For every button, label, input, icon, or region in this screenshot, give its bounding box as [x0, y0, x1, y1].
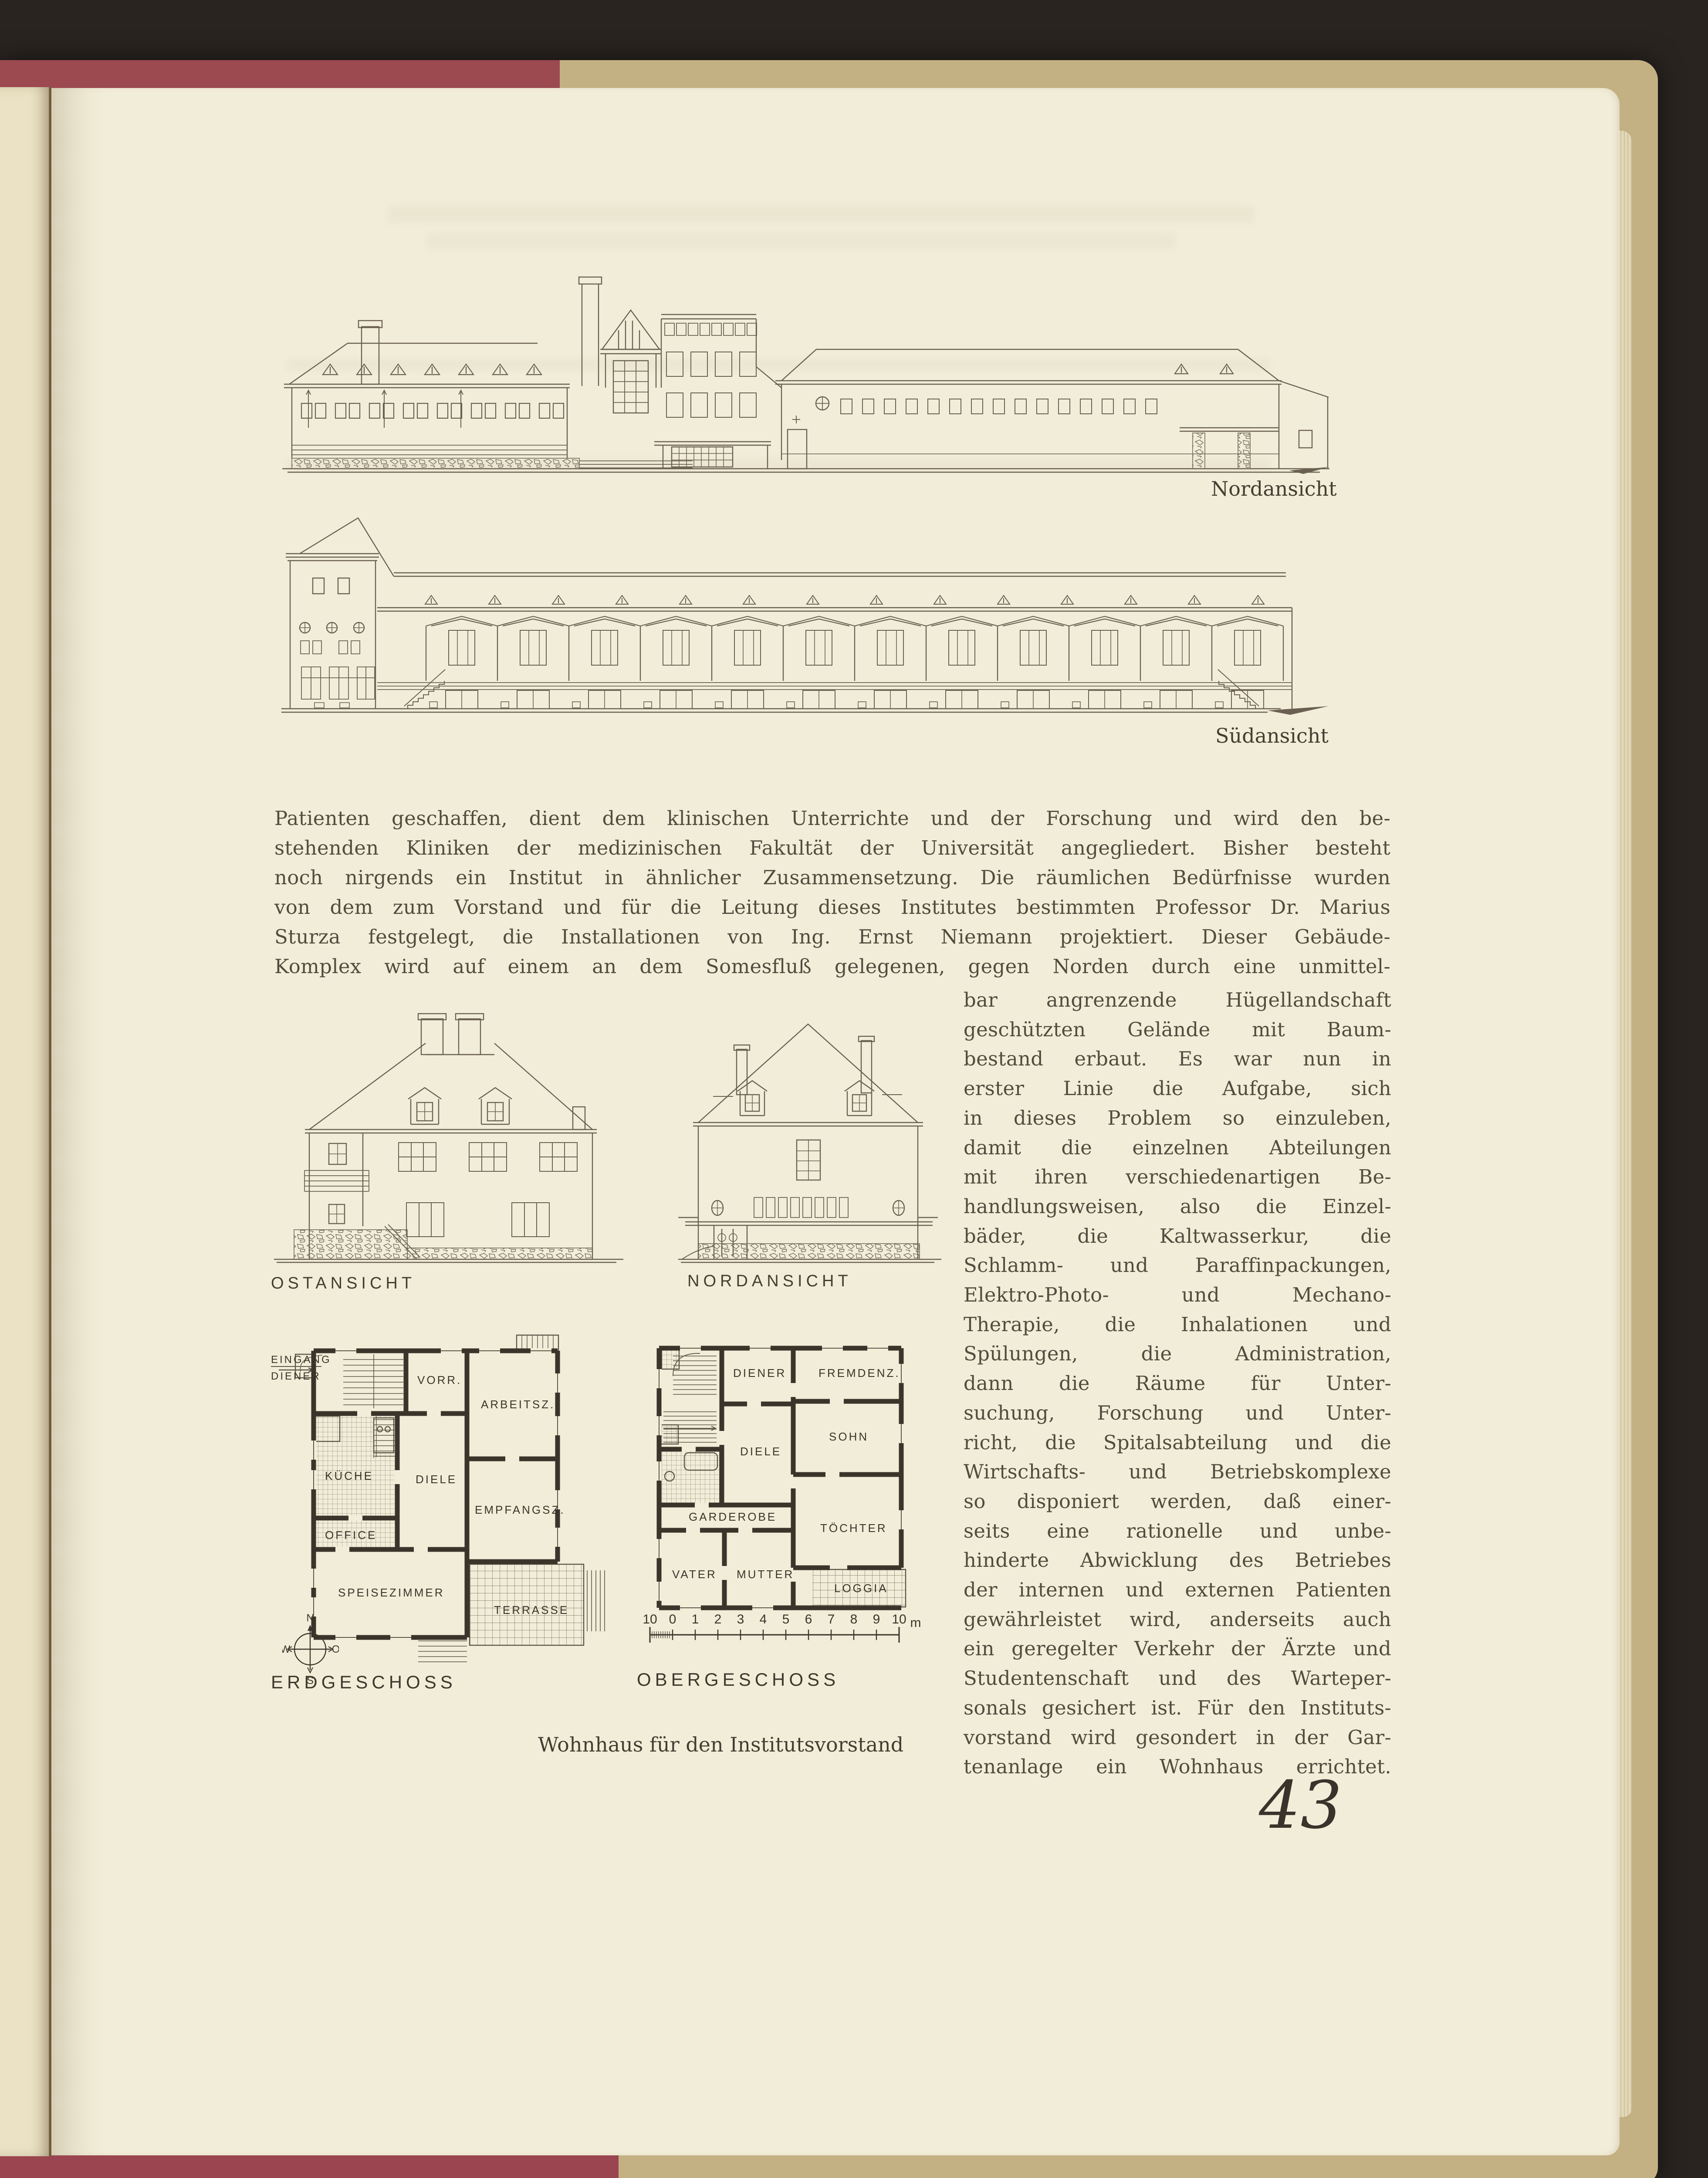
figure-ostansicht-elevation	[268, 1013, 629, 1270]
text-line: erster Linie die Aufgabe, sich	[964, 1074, 1391, 1103]
book-cover-maroon-bottom	[0, 2153, 619, 2178]
text-line: Patienten geschaffen, dient dem klinisch…	[274, 804, 1390, 833]
text-line: ein geregelter Verkehr der Ärzte und	[964, 1634, 1391, 1664]
text-line: geschützten Gelände mit Baum-	[964, 1015, 1391, 1045]
scale-number: 0	[669, 1612, 676, 1627]
scale-number: 7	[828, 1612, 835, 1627]
text-line: Studentenschaft und des Warteper-	[964, 1664, 1391, 1693]
bath-tile-floor	[661, 1451, 720, 1503]
room-label-sohn: SOHN	[829, 1430, 869, 1443]
room-label-loggia: LOGGIA	[834, 1582, 888, 1595]
page-edge-stack	[1618, 131, 1632, 2117]
room-label-diener-eg: DIENER	[271, 1370, 321, 1382]
scale-number: 5	[782, 1612, 790, 1627]
text-line: Sturza festgelegt, die Installationen vo…	[274, 922, 1390, 952]
text-line: sonals gesichert ist. Für den Instituts-	[964, 1693, 1391, 1723]
text-line: Therapie, die Inhalationen und	[964, 1310, 1391, 1339]
scale-unit: m	[910, 1616, 921, 1630]
bleedthrough-band	[426, 233, 1175, 249]
text-line: gewährleistet wird, anderseits auch	[964, 1605, 1391, 1634]
room-label-office: OFFICE	[325, 1529, 377, 1542]
room-label-diele-og: DIELE	[740, 1445, 781, 1458]
text-line: handlungsweisen, also die Einzel-	[964, 1192, 1391, 1221]
compass-o: O	[332, 1644, 339, 1655]
room-label-eingang: EINGANG	[271, 1354, 331, 1366]
scale-number: 10	[643, 1612, 657, 1627]
compass-lines	[287, 1625, 333, 1673]
nordansicht-caption: Nordansicht	[1211, 477, 1337, 501]
scale-number: 10	[892, 1612, 906, 1627]
room-label-mutter: MUTTER	[737, 1568, 794, 1581]
wc2-tile-floor	[661, 1425, 678, 1444]
text-line: mit ihren verschiedenartigen Be-	[964, 1162, 1391, 1192]
compass-n: N	[306, 1612, 314, 1624]
text-line: suchung, Forschung und Unter-	[964, 1398, 1391, 1428]
room-label-empfangsz: EMPFANGSZ.	[475, 1503, 565, 1516]
right-column: bar angrenzende Hügellandschaft geschütz…	[964, 985, 1391, 1782]
facing-page-sliver	[0, 87, 51, 2156]
text-line: der internen und externen Patienten	[964, 1575, 1391, 1605]
figure-obergeschoss-plan: DIENER FREMDENZ. SOHN DIELE GARDEROBE TÖ…	[643, 1331, 921, 1627]
scale-number: 1	[692, 1612, 699, 1627]
obergeschoss-label: OBERGESCHOSS	[637, 1669, 839, 1690]
plans-caption: Wohnhaus für den Institutsvorstand	[538, 1733, 903, 1756]
wc-tile-floor	[662, 1350, 679, 1369]
room-label-vorr: VORR.	[417, 1373, 462, 1387]
scanned-book-spread: Nordansicht	[0, 0, 1708, 2178]
text-line: richt, die Spitalsabteilung und die	[964, 1428, 1391, 1458]
room-label-garderobe: GARDEROBE	[689, 1510, 777, 1523]
text-line: stehenden Kliniken der medizinischen Fak…	[274, 833, 1390, 863]
book-cover-maroon-top	[0, 60, 560, 91]
figure-nordansicht-small-elevation	[673, 1013, 947, 1270]
nordansicht-linework	[282, 277, 1329, 474]
scale-number: 8	[850, 1612, 858, 1627]
ostansicht-label: OSTANSICHT	[271, 1274, 416, 1293]
room-label-diener: DIENER	[733, 1366, 786, 1380]
book-page: Nordansicht	[51, 88, 1620, 2155]
text-line: hinderte Abwicklung des Betriebes	[964, 1546, 1391, 1575]
suedansicht-caption: Südansicht	[1215, 724, 1329, 747]
suedansicht-linework	[281, 518, 1329, 715]
scale-number: 6	[805, 1612, 812, 1627]
room-label-diele-eg: DIELE	[416, 1473, 457, 1486]
scale-bar-numbers: 10 0 1 2 3 4 5 6 7 8 9 10 m	[643, 1612, 921, 1630]
nordansicht-small-label: NORDANSICHT	[687, 1272, 852, 1291]
room-label-vater: VATER	[672, 1568, 717, 1581]
text-line: vorstand wird gesondert in der Gar-	[964, 1723, 1391, 1752]
room-label-speisezimmer: SPEISEZIMMER	[338, 1586, 444, 1599]
room-label-toechter: TÖCHTER	[820, 1522, 887, 1535]
text-line: Schlamm- und Paraffinpackungen,	[964, 1251, 1391, 1280]
scale-number: 9	[873, 1612, 880, 1627]
text-line: seits eine rationelle und unbe-	[964, 1516, 1391, 1546]
ostansicht-linework	[274, 1014, 623, 1262]
text-line: Wirtschafts- und Betriebskomplexe	[964, 1457, 1391, 1487]
page-number: 43	[1259, 1768, 1342, 1843]
main-paragraph: Patienten geschaffen, dient dem klinisch…	[274, 804, 1390, 981]
room-label-fremdenz: FREMDENZ.	[818, 1366, 900, 1380]
text-line: noch nirgends ein Institut in ähnlicher …	[274, 863, 1390, 893]
text-line: bestand erbaut. Es war nun in	[964, 1044, 1391, 1074]
compass-w: W	[282, 1644, 291, 1655]
scale-number: 3	[737, 1612, 744, 1627]
figure-nordansicht-elevation	[274, 257, 1337, 484]
text-line: so disponiert werden, daß einer-	[964, 1487, 1391, 1516]
text-line: dann die Räume für Unter-	[964, 1369, 1391, 1398]
bleedthrough-band	[388, 205, 1255, 224]
scale-number: 4	[760, 1612, 767, 1627]
room-label-arbeitsz: ARBEITSZ.	[481, 1398, 555, 1411]
text-line: Komplex wird auf einem an dem Somesfluß …	[274, 952, 1390, 981]
text-line: bar angrenzende Hügellandschaft	[964, 985, 1391, 1015]
text-line: Spülungen, die Administration,	[964, 1339, 1391, 1369]
text-line: von dem zum Vorstand und für die Leitung…	[274, 893, 1390, 922]
nordansicht-small-linework	[678, 1024, 941, 1262]
text-line: damit die einzelnen Abteilungen	[964, 1133, 1391, 1163]
scale-number: 2	[714, 1612, 722, 1627]
text-line: Elektro-Photo- und Mechano-	[964, 1280, 1391, 1310]
figure-suedansicht-elevation	[274, 512, 1337, 723]
text-line: bäder, die Kaltwasserkur, die	[964, 1221, 1391, 1251]
text-line: in dieses Problem so einzuleben,	[964, 1103, 1391, 1133]
scale-bar: 10 0 1 2 3 4 5 6 7 8 9 10 m	[639, 1610, 927, 1649]
room-label-kueche: KÜCHE	[325, 1469, 373, 1482]
erdgeschoss-label: ERDGESCHOSS	[271, 1672, 457, 1693]
scale-bar-lines	[650, 1627, 899, 1643]
room-label-terrasse: TERRASSE	[494, 1603, 569, 1617]
